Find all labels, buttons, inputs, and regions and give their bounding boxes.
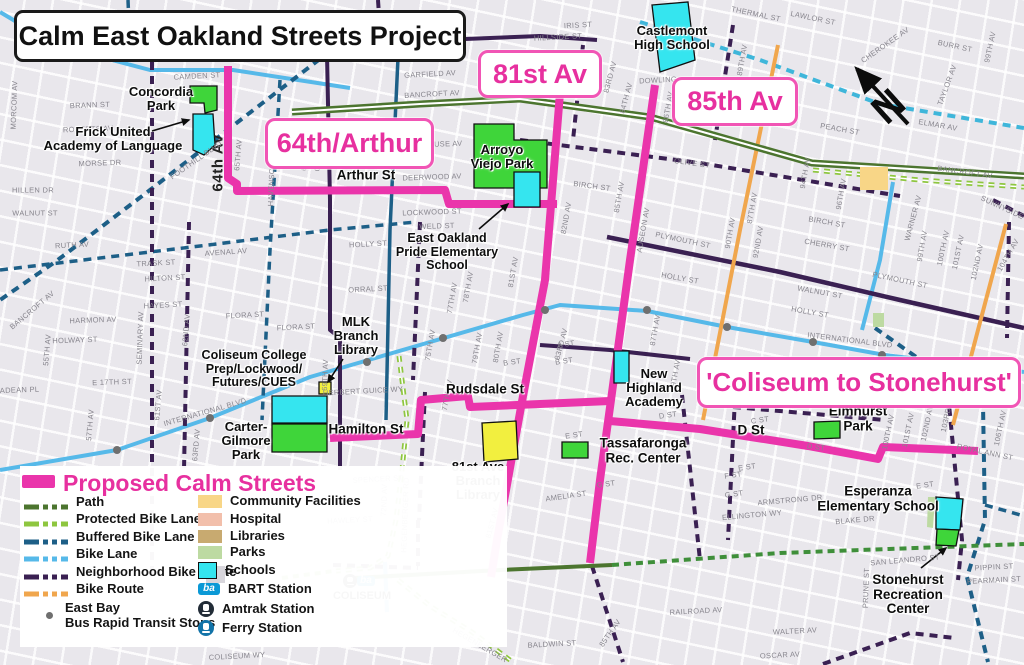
street-label: RUTH AV xyxy=(55,240,89,251)
route-nbr-right-vertical xyxy=(1007,222,1009,338)
ccp-label: Coliseum College Prep/Lockwood/ Futures/… xyxy=(202,349,307,390)
legend-line-buffered-bike-lane: Buffered Bike Lane xyxy=(22,530,194,545)
legend-line-protected-bike-lane: Protected Bike Lane xyxy=(22,512,201,527)
brt-stop-dot xyxy=(643,306,651,314)
legend-brt-stops: East Bay Bus Rapid Transit Stops xyxy=(42,601,215,631)
street-label: SEMINARY AV xyxy=(135,311,146,365)
arthur-st-label: Arthur St xyxy=(337,169,396,184)
ferry-icon xyxy=(198,620,214,636)
street-label: PRUNE ST xyxy=(861,568,871,609)
legend-area-label: Parks xyxy=(230,545,265,560)
d-st-label: D St xyxy=(738,424,765,439)
mlk-library-label: MLK Branch Library xyxy=(334,315,379,357)
legend-station-label: BART Station xyxy=(228,582,312,597)
polygon-concordia-park xyxy=(190,86,217,113)
hamilton-st-label: Hamilton St xyxy=(328,423,403,438)
legend-line-swatch xyxy=(22,550,68,558)
brt-stop-dot xyxy=(113,446,121,454)
brt-stop-dot xyxy=(541,306,549,314)
polygon-tassafaronga-rec xyxy=(562,442,588,458)
legend-line-label: Protected Bike Lane xyxy=(76,512,201,527)
route-nbr-bottom-right xyxy=(823,633,955,664)
legend-area-swatch xyxy=(198,530,222,543)
street-label: 69TH AV xyxy=(320,359,330,391)
route-buffered-branch xyxy=(985,505,1024,516)
legend-line-swatch xyxy=(22,568,68,576)
polygon-eo-pride-school xyxy=(514,172,540,207)
legend-area-label: Community Facilities xyxy=(230,494,361,509)
legend-station-ferry: Ferry Station xyxy=(198,620,302,636)
route-bike-lane-98th-av xyxy=(862,182,893,330)
legend-line-label: Bike Lane xyxy=(76,547,137,562)
street-label: HARMON AV xyxy=(69,315,116,326)
eo-pride-label: East Oakland Pride Elementary School xyxy=(396,232,498,273)
rudsdale-st-label: Rudsdale St xyxy=(446,383,524,398)
amtrak-icon xyxy=(198,601,214,617)
polygon-ccp-lockwood-school xyxy=(272,396,327,423)
street-label: MORSE DR xyxy=(78,158,121,168)
legend-area-swatch xyxy=(198,513,222,526)
route-nbr-89th-south xyxy=(682,395,700,560)
street-label: WALNUT ST xyxy=(12,209,58,218)
legend-line-path: Path xyxy=(22,495,104,510)
legend-line-swatch xyxy=(22,585,68,593)
legend-area-swatch xyxy=(198,546,222,559)
elmhurst-park-label: Elmhurst Park xyxy=(829,404,888,433)
brt-stop-dot xyxy=(363,358,371,366)
new-highland-label: New Highland Academy xyxy=(625,367,683,409)
calm-streets-swatch xyxy=(22,475,55,488)
legend-line-bike-route: Bike Route xyxy=(22,582,144,597)
route-calm-85th-av xyxy=(590,85,655,563)
legend-station-amtrak: Amtrak Station xyxy=(198,601,314,617)
concordia-park-label: Concordia Park xyxy=(129,85,193,113)
street-label: E 17TH ST xyxy=(92,377,132,387)
legend-brt-label: East Bay Bus Rapid Transit Stops xyxy=(65,601,215,631)
brt-stop-dot xyxy=(439,334,447,342)
carter-gilmore-label: Carter- Gilmore Park xyxy=(221,420,270,462)
legend-line-swatch xyxy=(22,515,68,523)
legend-line-swatch xyxy=(22,533,68,541)
page-title: Calm East Oakland Streets Project xyxy=(14,10,466,62)
polygon-81st-branch-library xyxy=(482,421,518,462)
street-label: IRIS ST xyxy=(564,20,593,30)
polygon-carter-gilmore-park xyxy=(272,424,327,452)
street-label: BRANN ST xyxy=(70,100,111,110)
frick-academy-label: Frick United Academy of Language xyxy=(44,125,183,153)
polygon-stonehurst-rec xyxy=(936,529,959,546)
legend-station-label: Amtrak Station xyxy=(222,602,314,617)
street-label: HILLEN DR xyxy=(12,186,54,195)
callout-81st-av: 81st Av xyxy=(478,50,602,98)
polygon-community-facility-96th xyxy=(860,167,888,190)
bart-icon: ba xyxy=(198,583,220,595)
esperanza-label: Esperanza Elementary School xyxy=(817,484,939,513)
callout-64th-arthur: 64th/Arthur xyxy=(265,118,434,169)
legend-line-swatch xyxy=(22,498,68,506)
street-label: WELD ST xyxy=(419,221,455,231)
tassafaronga-label: Tassafaronga Rec. Center xyxy=(600,436,687,465)
legend-area-label: Schools xyxy=(225,563,276,578)
legend-area-swatch xyxy=(198,562,217,579)
legend-line-label: Path xyxy=(76,495,104,510)
stonehurst-label: Stonehurst Recreation Center xyxy=(872,573,943,617)
legend-area-schools: Schools xyxy=(198,562,276,579)
legend-area-swatch xyxy=(198,495,222,508)
legend-station-bart: baBART Station xyxy=(198,582,312,597)
legend-area-label: Libraries xyxy=(230,529,285,544)
legend-line-label: Buffered Bike Lane xyxy=(76,530,194,545)
legend-area-label: Hospital xyxy=(230,512,281,527)
legend-area-libraries: Libraries xyxy=(198,529,285,544)
polygon-esperanza-school xyxy=(936,497,963,530)
street-label: WADEAN PL xyxy=(0,385,39,396)
arroyo-viejo-label: Arroyo Viejo Park xyxy=(471,143,534,171)
legend-area-parks: Parks xyxy=(198,545,265,560)
street-label: HOLWAY ST xyxy=(52,335,98,346)
brt-stop-swatch xyxy=(46,612,53,619)
callout-85th-av: 85th Av xyxy=(672,77,798,126)
legend-area-community-facilities: Community Facilities xyxy=(198,494,361,509)
legend-area-hospital: Hospital xyxy=(198,512,281,527)
map-flyer: CAMDEN STBRANN STROBERTS AVMORSE DRHILLE… xyxy=(0,0,1024,665)
legend-line-bike-lane: Bike Lane xyxy=(22,547,137,562)
callout-coliseum-to-stonehurst: 'Coliseum to Stonehurst' xyxy=(697,357,1021,408)
route-nbr-85th-south xyxy=(592,566,623,662)
legend-station-label: Ferry Station xyxy=(222,621,302,636)
brt-stop-dot xyxy=(723,323,731,331)
legend-line-label: Bike Route xyxy=(76,582,144,597)
street-label: MORCOM AV xyxy=(9,80,20,129)
castlemont-label: Castlemont High School xyxy=(634,24,710,52)
polygon-small-park xyxy=(873,313,884,327)
